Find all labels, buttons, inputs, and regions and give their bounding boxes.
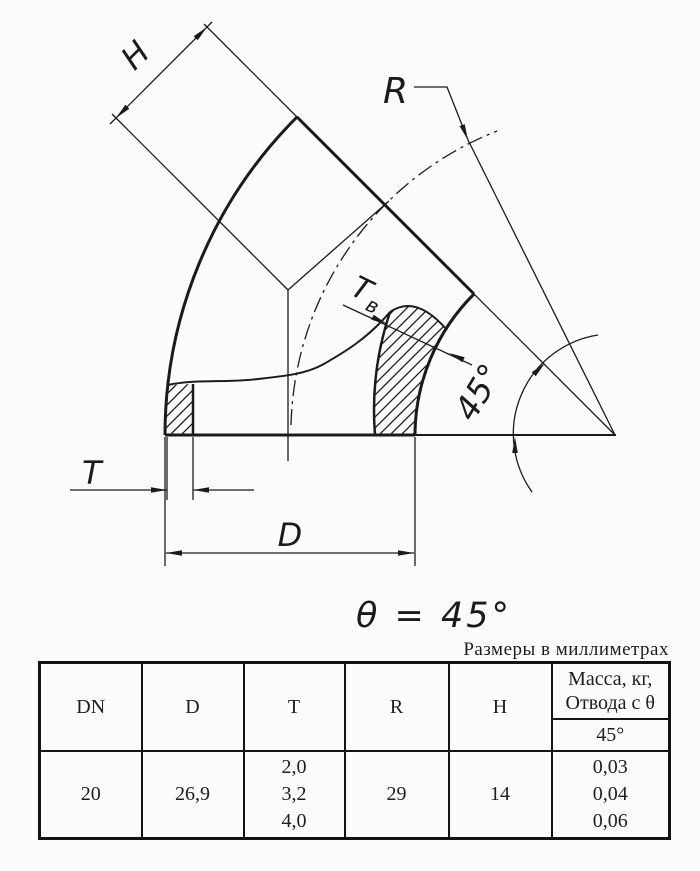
t-arrow-right — [193, 487, 209, 493]
header-cell-mass: Масса, кг, Отвода с θ — [552, 663, 670, 720]
mass-value-3: 0,06 — [553, 808, 669, 835]
mass-value-2: 0,04 — [553, 781, 669, 808]
cell-dn: 20 — [40, 751, 142, 839]
mass-values: 0,03 0,04 0,06 — [553, 754, 669, 835]
elbow-technical-drawing: H R Tв 45° T D θ = 45° — [0, 0, 700, 650]
d-arrow-right — [398, 550, 414, 556]
break-line — [168, 312, 390, 385]
left-wall-section-hatch — [166, 384, 193, 435]
page: H R Tв 45° T D θ = 45° Размеры в миллиме… — [0, 0, 700, 871]
dimension-label-h: H — [113, 33, 157, 77]
header-cell-t: T — [244, 663, 345, 752]
t-value-2: 3,2 — [245, 781, 344, 808]
cell-h: 14 — [449, 751, 552, 839]
dimension-label-t: T — [82, 454, 104, 492]
cell-t: 2,0 3,2 4,0 — [244, 751, 345, 839]
header-cell-mass-angle: 45° — [552, 719, 670, 751]
dimension-label-tv: Tв — [344, 270, 390, 319]
cell-d: 26,9 — [142, 751, 244, 839]
t-values: 2,0 3,2 4,0 — [245, 754, 344, 835]
r-leader-arrow — [460, 124, 469, 140]
mass-header-line2: Отвода с θ — [553, 691, 669, 715]
table-row: 20 26,9 2,0 3,2 4,0 29 14 0,03 0,04 0,06 — [40, 751, 670, 839]
tv-arrow-right — [449, 353, 465, 362]
table-caption: Размеры в миллиметрах — [463, 639, 669, 661]
theta-note: θ = 45° — [356, 596, 512, 636]
cell-r: 29 — [345, 751, 449, 839]
angle-label-45: 45° — [446, 357, 510, 427]
dimension-label-d: D — [278, 516, 303, 554]
angle-dimension-arc — [513, 335, 598, 492]
header-cell-dn: DN — [40, 663, 142, 752]
cell-mass: 0,03 0,04 0,06 — [552, 751, 670, 839]
r-leader-line — [414, 87, 468, 140]
t-value-1: 2,0 — [245, 754, 344, 781]
angle-arrow-upper — [532, 363, 545, 376]
dimensions-table: DN D T R H Масса, кг, Отвода с θ 45° 20 … — [38, 661, 671, 840]
d-arrow-left — [166, 550, 182, 556]
header-cell-d: D — [142, 663, 244, 752]
mass-value-1: 0,03 — [553, 754, 669, 781]
mass-header-line1: Масса, кг, — [553, 667, 669, 691]
dimension-label-r: R — [383, 71, 408, 112]
t-value-3: 4,0 — [245, 808, 344, 835]
header-cell-h: H — [449, 663, 552, 752]
header-cell-r: R — [345, 663, 449, 752]
